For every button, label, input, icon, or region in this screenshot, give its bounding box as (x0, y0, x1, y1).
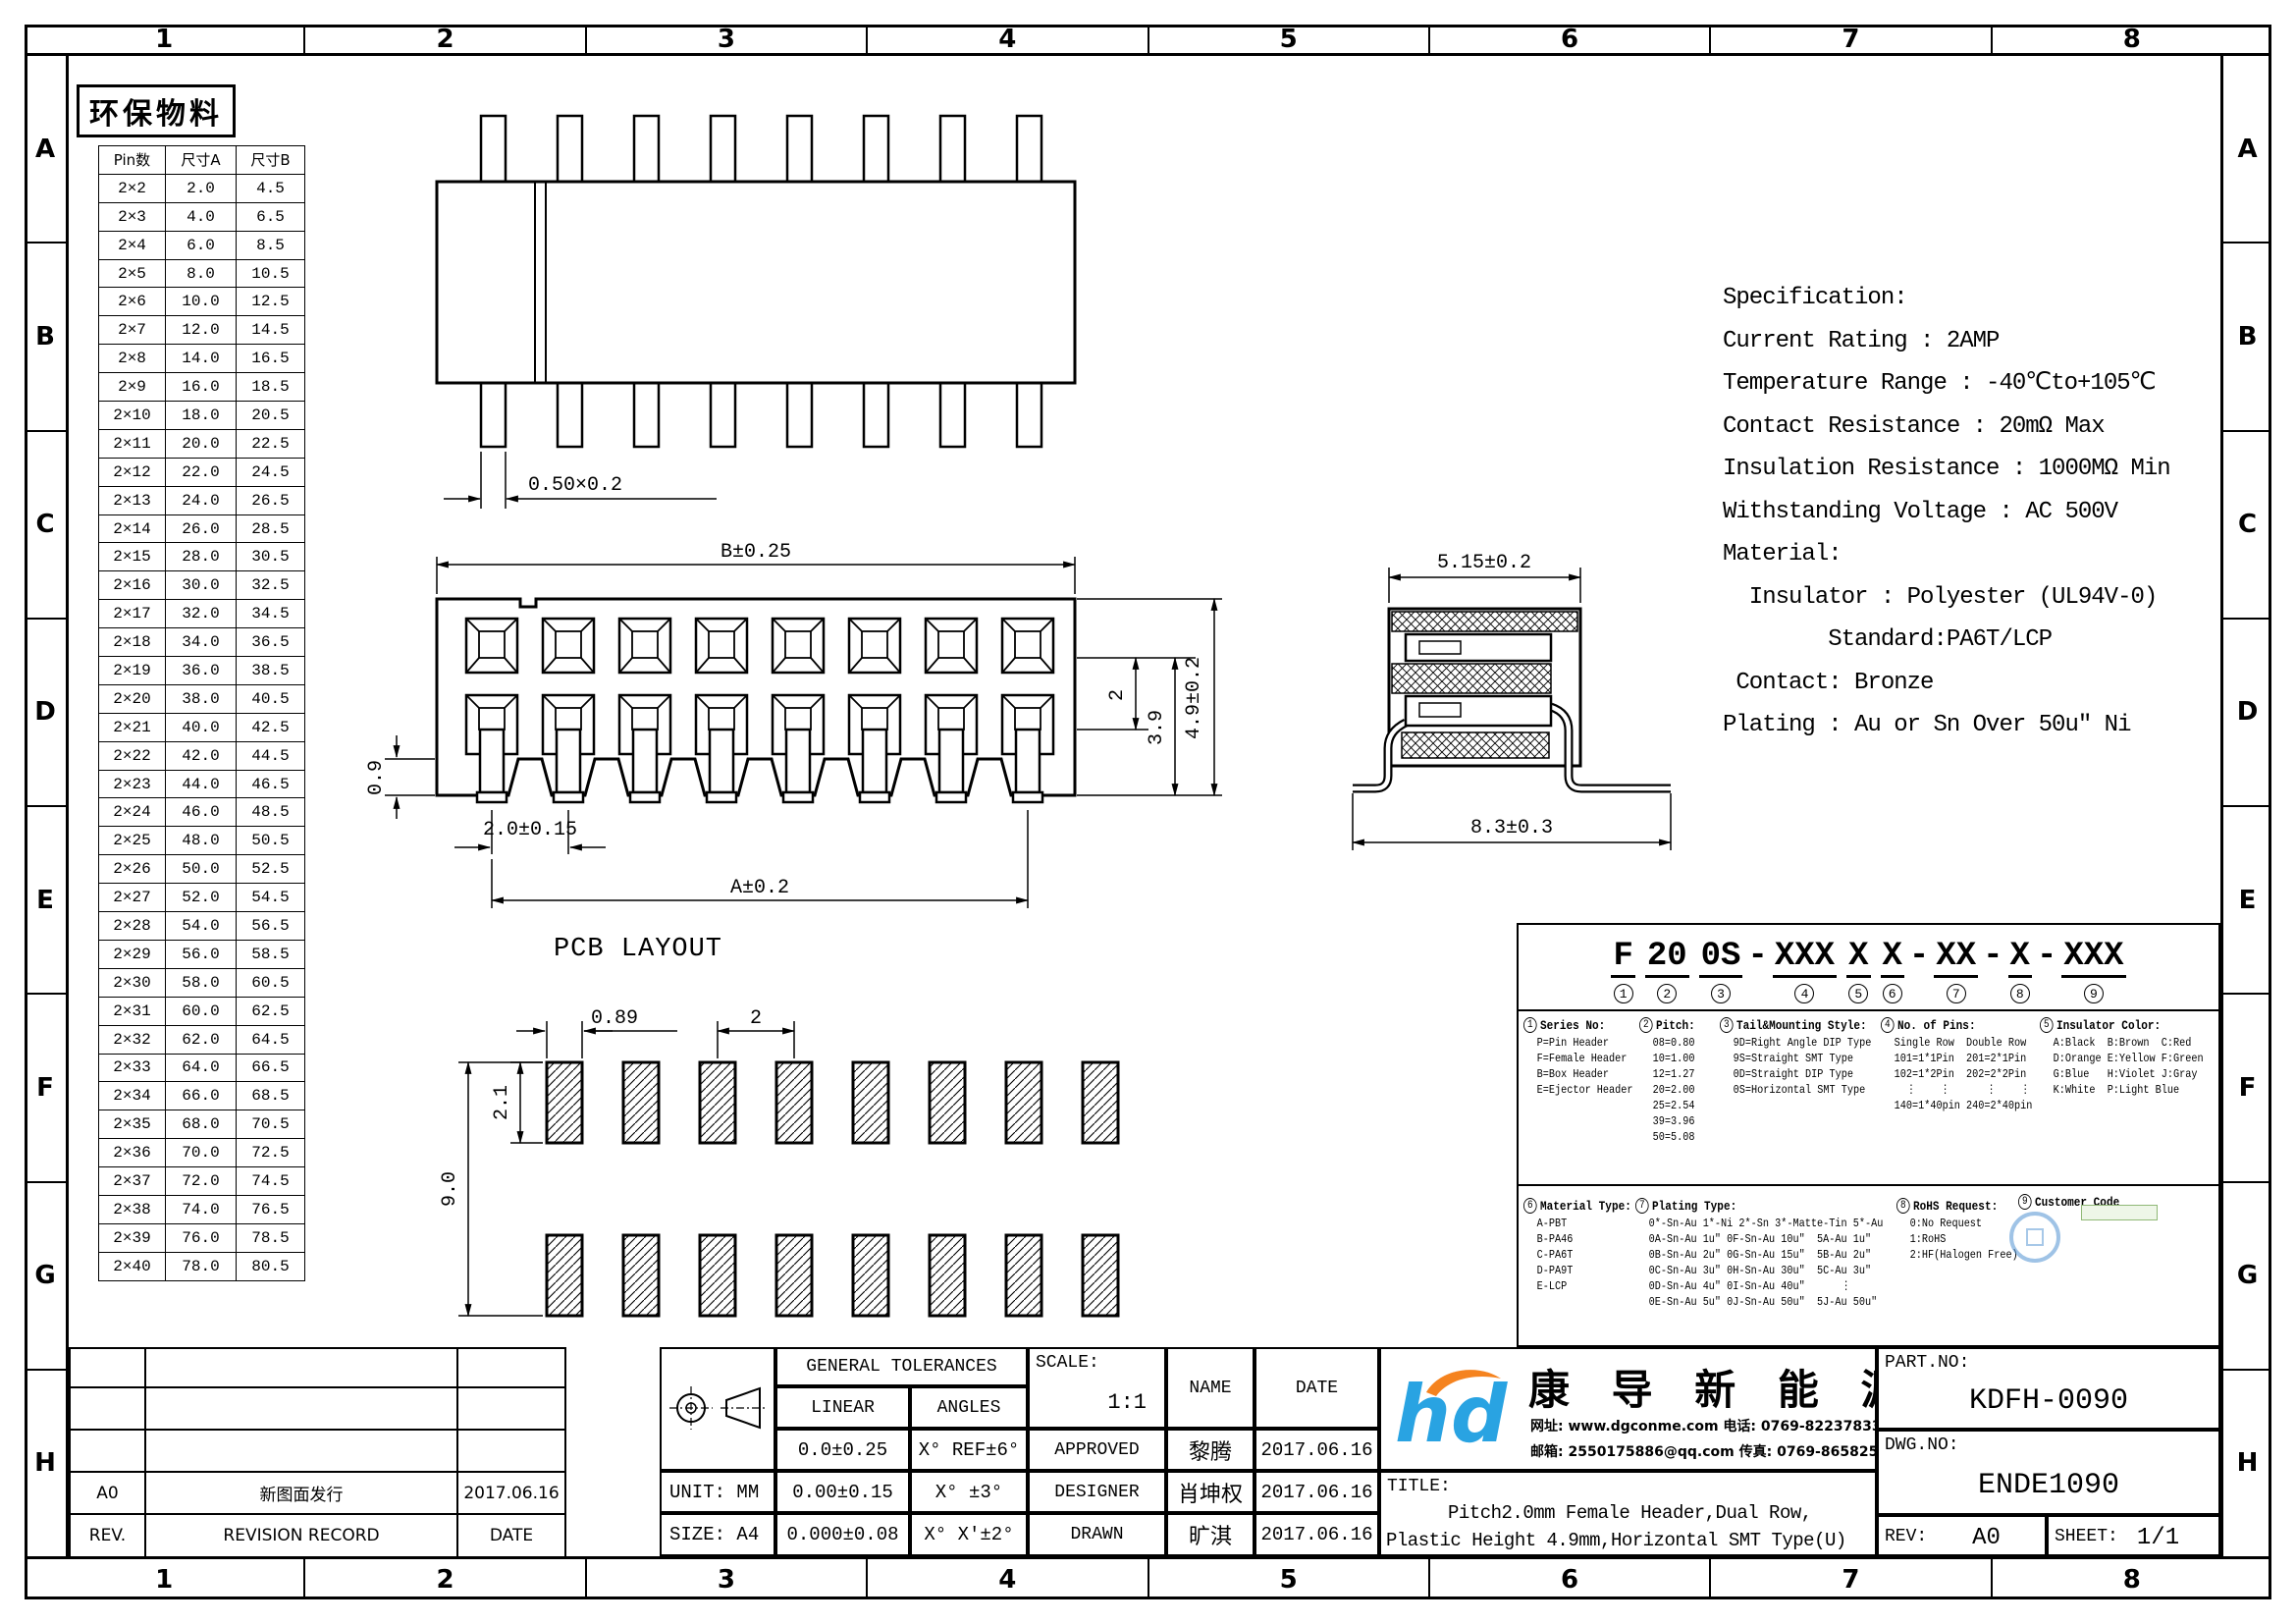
solder-pad (1006, 1235, 1041, 1316)
designer-name: 肖坤权 (1166, 1471, 1255, 1513)
zone-label: 3 (587, 25, 868, 53)
company-name: 康 导 新 能 源 (1528, 1357, 1916, 1417)
revision-cell: 2017.06.16 (458, 1473, 566, 1515)
zone-label: B (25, 244, 66, 431)
side-section-drawing: 5.15±0.2 8.3±0.3 (1345, 540, 1679, 893)
pin-table-row: 2×2140.042.5 (99, 713, 305, 741)
spec-line: Material: (1723, 533, 2170, 576)
name-header: NAME (1166, 1347, 1255, 1429)
zone-label: 6 (1430, 25, 1711, 53)
solder-pad (623, 1235, 659, 1316)
pitch-dim-label: 2.0±0.15 (483, 819, 577, 841)
pin-table-row: 2×1834.036.5 (99, 628, 305, 657)
sheet-value: 1/1 (2049, 1525, 2218, 1551)
zone-label: 2 (305, 25, 586, 53)
pin-table-row: 2×3976.078.5 (99, 1223, 305, 1252)
zone-label: 6 (1430, 1559, 1711, 1599)
general-tolerances-header: GENERAL TOLERANCES (775, 1347, 1028, 1386)
engineering-drawing-sheet: { "sheet": { "zone_columns": ["1","2","3… (0, 0, 2296, 1624)
segment-number: 6 (1883, 984, 1902, 1003)
spec-line: Insulator : Polyester (UL94V-0) (1723, 576, 2170, 620)
dim-b-header: 尺寸B (237, 146, 305, 175)
pin-table-row: 2×1222.024.5 (99, 458, 305, 486)
part-code-separator: - (1983, 938, 2002, 975)
front-view-drawing: B±0.25 0.9 2.0±0.15 A±0.2 2 3.9 4.9±0.2 (334, 535, 1306, 947)
pin-table-row: 2×2854.056.5 (99, 912, 305, 941)
spec-line: Withstanding Voltage : AC 500V (1723, 491, 2170, 534)
svg-text:hd: hd (1395, 1369, 1508, 1454)
angle-tol-2: X° ±3° (910, 1471, 1028, 1513)
span-dim-label: A±0.2 (730, 877, 789, 899)
revision-cell: REVISION RECORD (146, 1515, 458, 1558)
pin-table-row: 2×712.014.5 (99, 316, 305, 345)
side-width-dim-label: 5.15±0.2 (1437, 552, 1531, 574)
side-depth-dim-label: 8.3±0.3 (1470, 817, 1553, 839)
solder-pad (776, 1062, 812, 1143)
spec-line: Current Rating : 2AMP (1723, 320, 2170, 363)
dwg-no-cell: DWG.NO: ENDE1090 (1877, 1430, 2220, 1515)
zone-label: 1 (25, 25, 305, 53)
pin-table-row: 2×1936.038.5 (99, 657, 305, 685)
zone-label: 1 (25, 1559, 305, 1599)
pad-width-dim-label: 0.89 (591, 1007, 638, 1030)
pad-height-dim-label: 2.1 (491, 1085, 513, 1120)
spec-line: Contact: Bronze (1723, 662, 2170, 705)
approved-name: 黎腾 (1166, 1429, 1255, 1471)
pin-table-row: 2×2344.046.5 (99, 770, 305, 798)
company-logo-icon: hd (1389, 1361, 1517, 1454)
revision-table: A0新图面发行2017.06.16REV.REVISION RECORDDATE (69, 1347, 566, 1558)
zone-label: A (2223, 56, 2271, 244)
pin-table-row: 2×1732.034.5 (99, 600, 305, 628)
drawn-role: DRAWN (1028, 1513, 1166, 1556)
designer-role: DESIGNER (1028, 1471, 1166, 1513)
row-dim-label: 2 (1106, 689, 1129, 701)
pin-table-row: 2×3160.062.5 (99, 997, 305, 1025)
solder-pad (700, 1235, 735, 1316)
pin-table-row: 2×3670.072.5 (99, 1139, 305, 1167)
pin-table-row: 2×4078.080.5 (99, 1252, 305, 1280)
zone-label: 8 (1993, 25, 2271, 53)
segment-number: 3 (1711, 984, 1731, 1003)
zone-label: 7 (1711, 25, 1992, 53)
pin-table-row: 2×1528.030.5 (99, 543, 305, 571)
part-code-separator: - (1747, 938, 1767, 975)
stamp-annotation (2081, 1205, 2158, 1220)
revision-cell (458, 1349, 566, 1388)
part-code-segment: XXX9 (2061, 938, 2125, 1003)
pin-table-row: 2×3874.076.5 (99, 1195, 305, 1223)
solder-pad (700, 1062, 735, 1143)
zone-label: F (25, 995, 66, 1182)
pin-table-row: 2×3058.060.5 (99, 968, 305, 997)
zone-label: E (2223, 807, 2271, 995)
insulator-hatch (1402, 732, 1549, 758)
zone-band-right: ABCDEFGH (2220, 56, 2271, 1556)
revision-cell (458, 1388, 566, 1431)
h2-dim-label: 4.9±0.2 (1183, 657, 1205, 739)
pin-table-row: 2×1324.026.5 (99, 486, 305, 514)
revision-cell: DATE (458, 1515, 566, 1558)
pin-table-row: 2×2548.050.5 (99, 827, 305, 855)
spec-line: Standard:PA6T/LCP (1723, 619, 2170, 662)
front-view-body (437, 599, 1075, 795)
pin-table-row: 2×1120.022.5 (99, 429, 305, 458)
zone-label: D (2223, 620, 2271, 807)
eco-material-label: 环保物料 (77, 84, 236, 137)
zone-label: 5 (1149, 1559, 1430, 1599)
drawn-name: 旷淇 (1166, 1513, 1255, 1556)
pin-table-row: 2×2446.048.5 (99, 798, 305, 827)
title-label: TITLE: (1387, 1477, 1451, 1496)
pin-table-header-row: Pin数 尺寸A 尺寸B (99, 146, 305, 175)
linear-tol-1: 0.0±0.25 (775, 1429, 910, 1471)
pin-table-row: 2×46.08.5 (99, 231, 305, 259)
insulator-hatch (1392, 664, 1551, 693)
pin-table-row: 2×2038.040.5 (99, 684, 305, 713)
linear-tol-2: 0.00±0.15 (775, 1471, 910, 1513)
projection-symbol-cell (660, 1347, 775, 1471)
pin-table-row: 2×22.04.5 (99, 174, 305, 202)
pin-table-row: 2×2650.052.5 (99, 855, 305, 884)
pin-table-row: 2×610.012.5 (99, 288, 305, 316)
zone-label: 8 (1993, 1559, 2271, 1599)
zone-label: H (2223, 1371, 2271, 1556)
designer-date: 2017.06.16 (1255, 1471, 1379, 1513)
dim-a-header: 尺寸A (166, 146, 237, 175)
spec-line: Insulation Resistance : 1000MΩ Min (1723, 448, 2170, 491)
pin-table-row: 2×3364.066.5 (99, 1054, 305, 1082)
segment-number: 5 (1848, 984, 1868, 1003)
linear-header: LINEAR (775, 1386, 910, 1429)
angle-tol-3: X° X'±2° (910, 1513, 1028, 1556)
pin-table-row: 2×1630.032.5 (99, 571, 305, 600)
segment-number: 2 (1657, 984, 1677, 1003)
approved-role: APPROVED (1028, 1429, 1166, 1471)
zone-label: D (25, 620, 66, 807)
zone-label: H (25, 1371, 66, 1556)
unit-cell: UNIT: MM (660, 1471, 775, 1513)
zone-band-left: ABCDEFGH (25, 56, 69, 1556)
solder-pad (853, 1235, 888, 1316)
zone-label: B (2223, 244, 2271, 431)
drawing-title-line2: Plastic Height 4.9mm,Horizontal SMT Type… (1386, 1530, 1846, 1551)
angle-tol-1: X° REF±6° (910, 1429, 1028, 1471)
solder-pad (1006, 1062, 1041, 1143)
zone-label: G (25, 1183, 66, 1371)
top-view-drawing: 0.50×0.2 (422, 98, 1109, 520)
solder-pad (1083, 1235, 1118, 1316)
date-header: DATE (1255, 1347, 1379, 1429)
scale-cell: SCALE: 1:1 (1028, 1347, 1166, 1429)
segment-number: 8 (2010, 984, 2030, 1003)
part-code-segment: F1 (1611, 938, 1634, 1003)
spec-line: Plating : Au or Sn Over 50u″ Ni (1723, 704, 2170, 747)
part-number: F12020S3-XXX4X5X6-XX7-X8-XXX9 (1517, 938, 2220, 1003)
title-cell: TITLE: Pitch2.0mm Female Header,Dual Row… (1379, 1471, 1877, 1556)
revision-cell (71, 1349, 146, 1388)
rev-cell: REV: A0 (1877, 1515, 2047, 1556)
solder-pad (930, 1235, 965, 1316)
pin-table-row: 2×58.010.5 (99, 259, 305, 288)
part-code-segment: X8 (2008, 938, 2032, 1003)
row-span-dim-label: 9.0 (439, 1171, 461, 1207)
specification: Specification:Current Rating : 2AMPTempe… (1723, 277, 2170, 747)
linear-tol-3: 0.000±0.08 (775, 1513, 910, 1556)
divider (1518, 1184, 2218, 1186)
zone-band-top: 12345678 (25, 25, 2271, 56)
solder-pad (930, 1062, 965, 1143)
pin-table-row: 2×2242.044.5 (99, 741, 305, 770)
title-block: A0新图面发行2017.06.16REV.REVISION RECORDDATE… (69, 1347, 2220, 1556)
company-cell: hd 康 导 新 能 源 网址: www.dgconme.com 电话: 076… (1379, 1347, 1877, 1471)
pin-table-row: 2×3772.074.5 (99, 1167, 305, 1196)
zone-label: 3 (587, 1559, 868, 1599)
revision-cell (458, 1431, 566, 1473)
revision-cell: 新图面发行 (146, 1473, 458, 1515)
company-contact-1: 网址: www.dgconme.com 电话: 0769-82237833 (1530, 1416, 1882, 1435)
drawn-date: 2017.06.16 (1255, 1513, 1379, 1556)
solder-pad (623, 1062, 659, 1143)
pcb-layout-title: PCB LAYOUT (510, 935, 766, 964)
top-view-body (437, 182, 1075, 383)
scale-label: SCALE: (1036, 1353, 1099, 1373)
solder-pad (547, 1062, 582, 1143)
solder-pad (853, 1062, 888, 1143)
revision-cell: REV. (71, 1515, 146, 1558)
part-code-separator: - (2037, 938, 2056, 975)
zone-label: 4 (868, 25, 1148, 53)
part-no-value: KDFH-0090 (1879, 1384, 2218, 1418)
size-cell: SIZE: A4 (660, 1513, 775, 1556)
h1-dim-label: 3.9 (1146, 710, 1168, 745)
zone-band-bottom: 12345678 (25, 1556, 2271, 1599)
pin-table-row: 2×814.016.5 (99, 345, 305, 373)
scale-value: 1:1 (1107, 1390, 1147, 1415)
zone-label: 5 (1149, 25, 1430, 53)
width-dim-label: B±0.25 (721, 541, 791, 564)
segment-number: 4 (1794, 984, 1814, 1003)
zone-label: C (25, 432, 66, 620)
pin-width-dim-label: 0.50×0.2 (528, 474, 622, 497)
solder-pad (1083, 1062, 1118, 1143)
revision-cell (146, 1431, 458, 1473)
zone-label: F (2223, 995, 2271, 1182)
company-contact-2: 邮箱: 2550175886@qq.com 传真: 0769-86582527 (1530, 1441, 1897, 1461)
revision-cell: A0 (71, 1473, 146, 1515)
zone-label: 7 (1711, 1559, 1992, 1599)
solder-pad (776, 1235, 812, 1316)
pin-table-row: 2×34.06.5 (99, 202, 305, 231)
pcb-layout-drawing: 0.89 2 2.1 9.0 (432, 982, 1139, 1345)
drawing-title-line1: Pitch2.0mm Female Header,Dual Row, (1448, 1502, 1812, 1524)
segment-number: 7 (1947, 984, 1966, 1003)
spec-line: Specification: (1723, 277, 2170, 320)
spec-line: Temperature Range : -40℃to+105℃ (1723, 362, 2170, 406)
divider (1518, 1009, 2218, 1011)
segment-number: 1 (1614, 984, 1633, 1003)
revision-cell (71, 1388, 146, 1431)
dwg-no-label: DWG.NO: (1885, 1435, 1959, 1455)
rev-value: A0 (1879, 1525, 2045, 1551)
pin-dimension-table: Pin数 尺寸A 尺寸B 2×22.04.52×34.06.52×46.08.5… (98, 145, 305, 1281)
revision-cell (146, 1349, 458, 1388)
pin-table-row: 2×3466.068.5 (99, 1082, 305, 1110)
part-code-segment: 0S3 (1699, 938, 1743, 1003)
part-no-cell: PART.NO: KDFH-0090 (1877, 1347, 2220, 1430)
part-code-segment: X6 (1881, 938, 1904, 1003)
pin-table-row: 2×1426.028.5 (99, 514, 305, 543)
top-view-upper-pins (481, 116, 1041, 182)
spec-line: Contact Resistance : 20mΩ Max (1723, 406, 2170, 449)
part-no-label: PART.NO: (1885, 1353, 1969, 1373)
sheet-cell: SHEET: 1/1 (2047, 1515, 2220, 1556)
part-code-separator: - (1909, 938, 1929, 975)
zone-label: 2 (305, 1559, 586, 1599)
revision-cell (71, 1431, 146, 1473)
standoff-dim-label: 0.9 (365, 760, 388, 795)
pin-count-header: Pin数 (99, 146, 166, 175)
dwg-no-value: ENDE1090 (1879, 1469, 2218, 1502)
pin-table-row: 2×916.018.5 (99, 373, 305, 402)
revision-cell (146, 1388, 458, 1431)
approved-date: 2017.06.16 (1255, 1429, 1379, 1471)
angles-header: ANGLES (910, 1386, 1028, 1429)
solder-pad (547, 1235, 582, 1316)
part-code-segment: X5 (1846, 938, 1870, 1003)
pin-table-row: 2×2752.054.5 (99, 884, 305, 912)
pin-table-row: 2×3262.064.5 (99, 1025, 305, 1054)
pin-table-row: 2×3568.070.5 (99, 1110, 305, 1139)
zone-label: C (2223, 432, 2271, 620)
segment-number: 9 (2084, 984, 2104, 1003)
zone-label: A (25, 56, 66, 244)
third-angle-projection-icon (662, 1349, 774, 1469)
pad-pitch-dim-label: 2 (750, 1007, 762, 1030)
zone-label: G (2223, 1183, 2271, 1371)
approval-stamp (2009, 1212, 2060, 1263)
insulator-hatch (1392, 612, 1577, 631)
part-code-segment: XXX4 (1773, 938, 1837, 1003)
zone-label: 4 (868, 1559, 1148, 1599)
zone-label: E (25, 807, 66, 995)
part-code-segment: XX7 (1934, 938, 1978, 1003)
pin-table-row: 2×1018.020.5 (99, 402, 305, 430)
top-view-lower-pins (481, 383, 1041, 447)
pin-table-row: 2×2956.058.5 (99, 940, 305, 968)
part-code-segment: 202 (1645, 938, 1689, 1003)
solder-pads (547, 1062, 1118, 1316)
